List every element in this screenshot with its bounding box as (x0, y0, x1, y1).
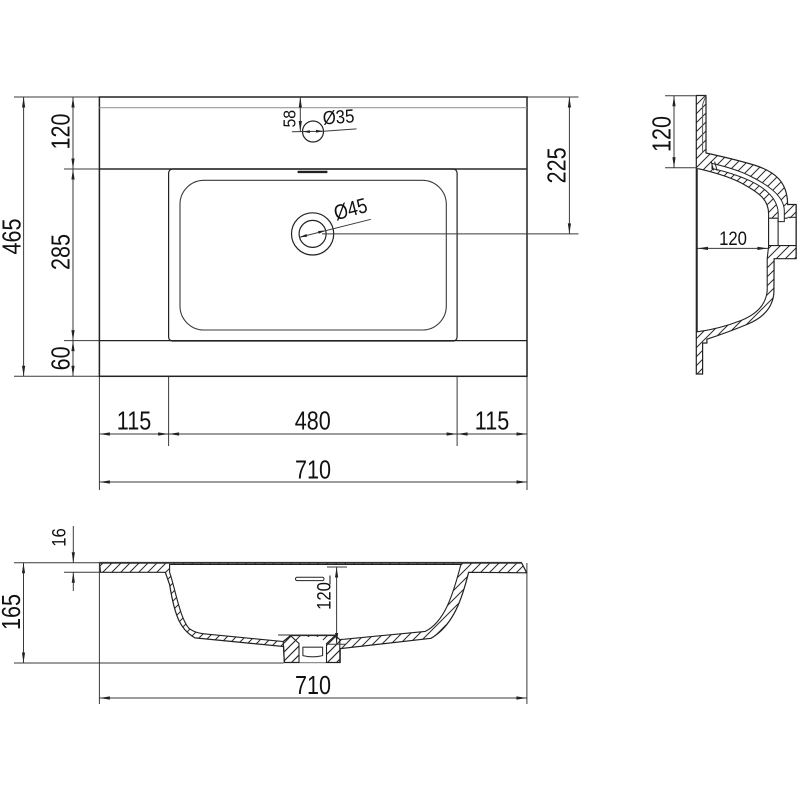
svg-text:165: 165 (0, 594, 26, 630)
svg-text:16: 16 (48, 528, 69, 547)
svg-text:285: 285 (47, 234, 76, 270)
svg-text:Ø35: Ø35 (322, 105, 355, 128)
svg-text:115: 115 (117, 406, 151, 435)
svg-text:58: 58 (280, 110, 300, 128)
svg-text:120: 120 (648, 116, 677, 152)
svg-text:120: 120 (47, 114, 76, 150)
svg-text:60: 60 (47, 346, 76, 370)
svg-text:120: 120 (719, 228, 747, 249)
svg-text:710: 710 (295, 455, 331, 484)
svg-text:480: 480 (295, 406, 331, 435)
svg-text:115: 115 (475, 406, 509, 435)
svg-text:710: 710 (295, 671, 331, 700)
svg-text:225: 225 (543, 147, 572, 183)
svg-text:465: 465 (0, 219, 27, 255)
svg-text:120: 120 (313, 582, 334, 610)
